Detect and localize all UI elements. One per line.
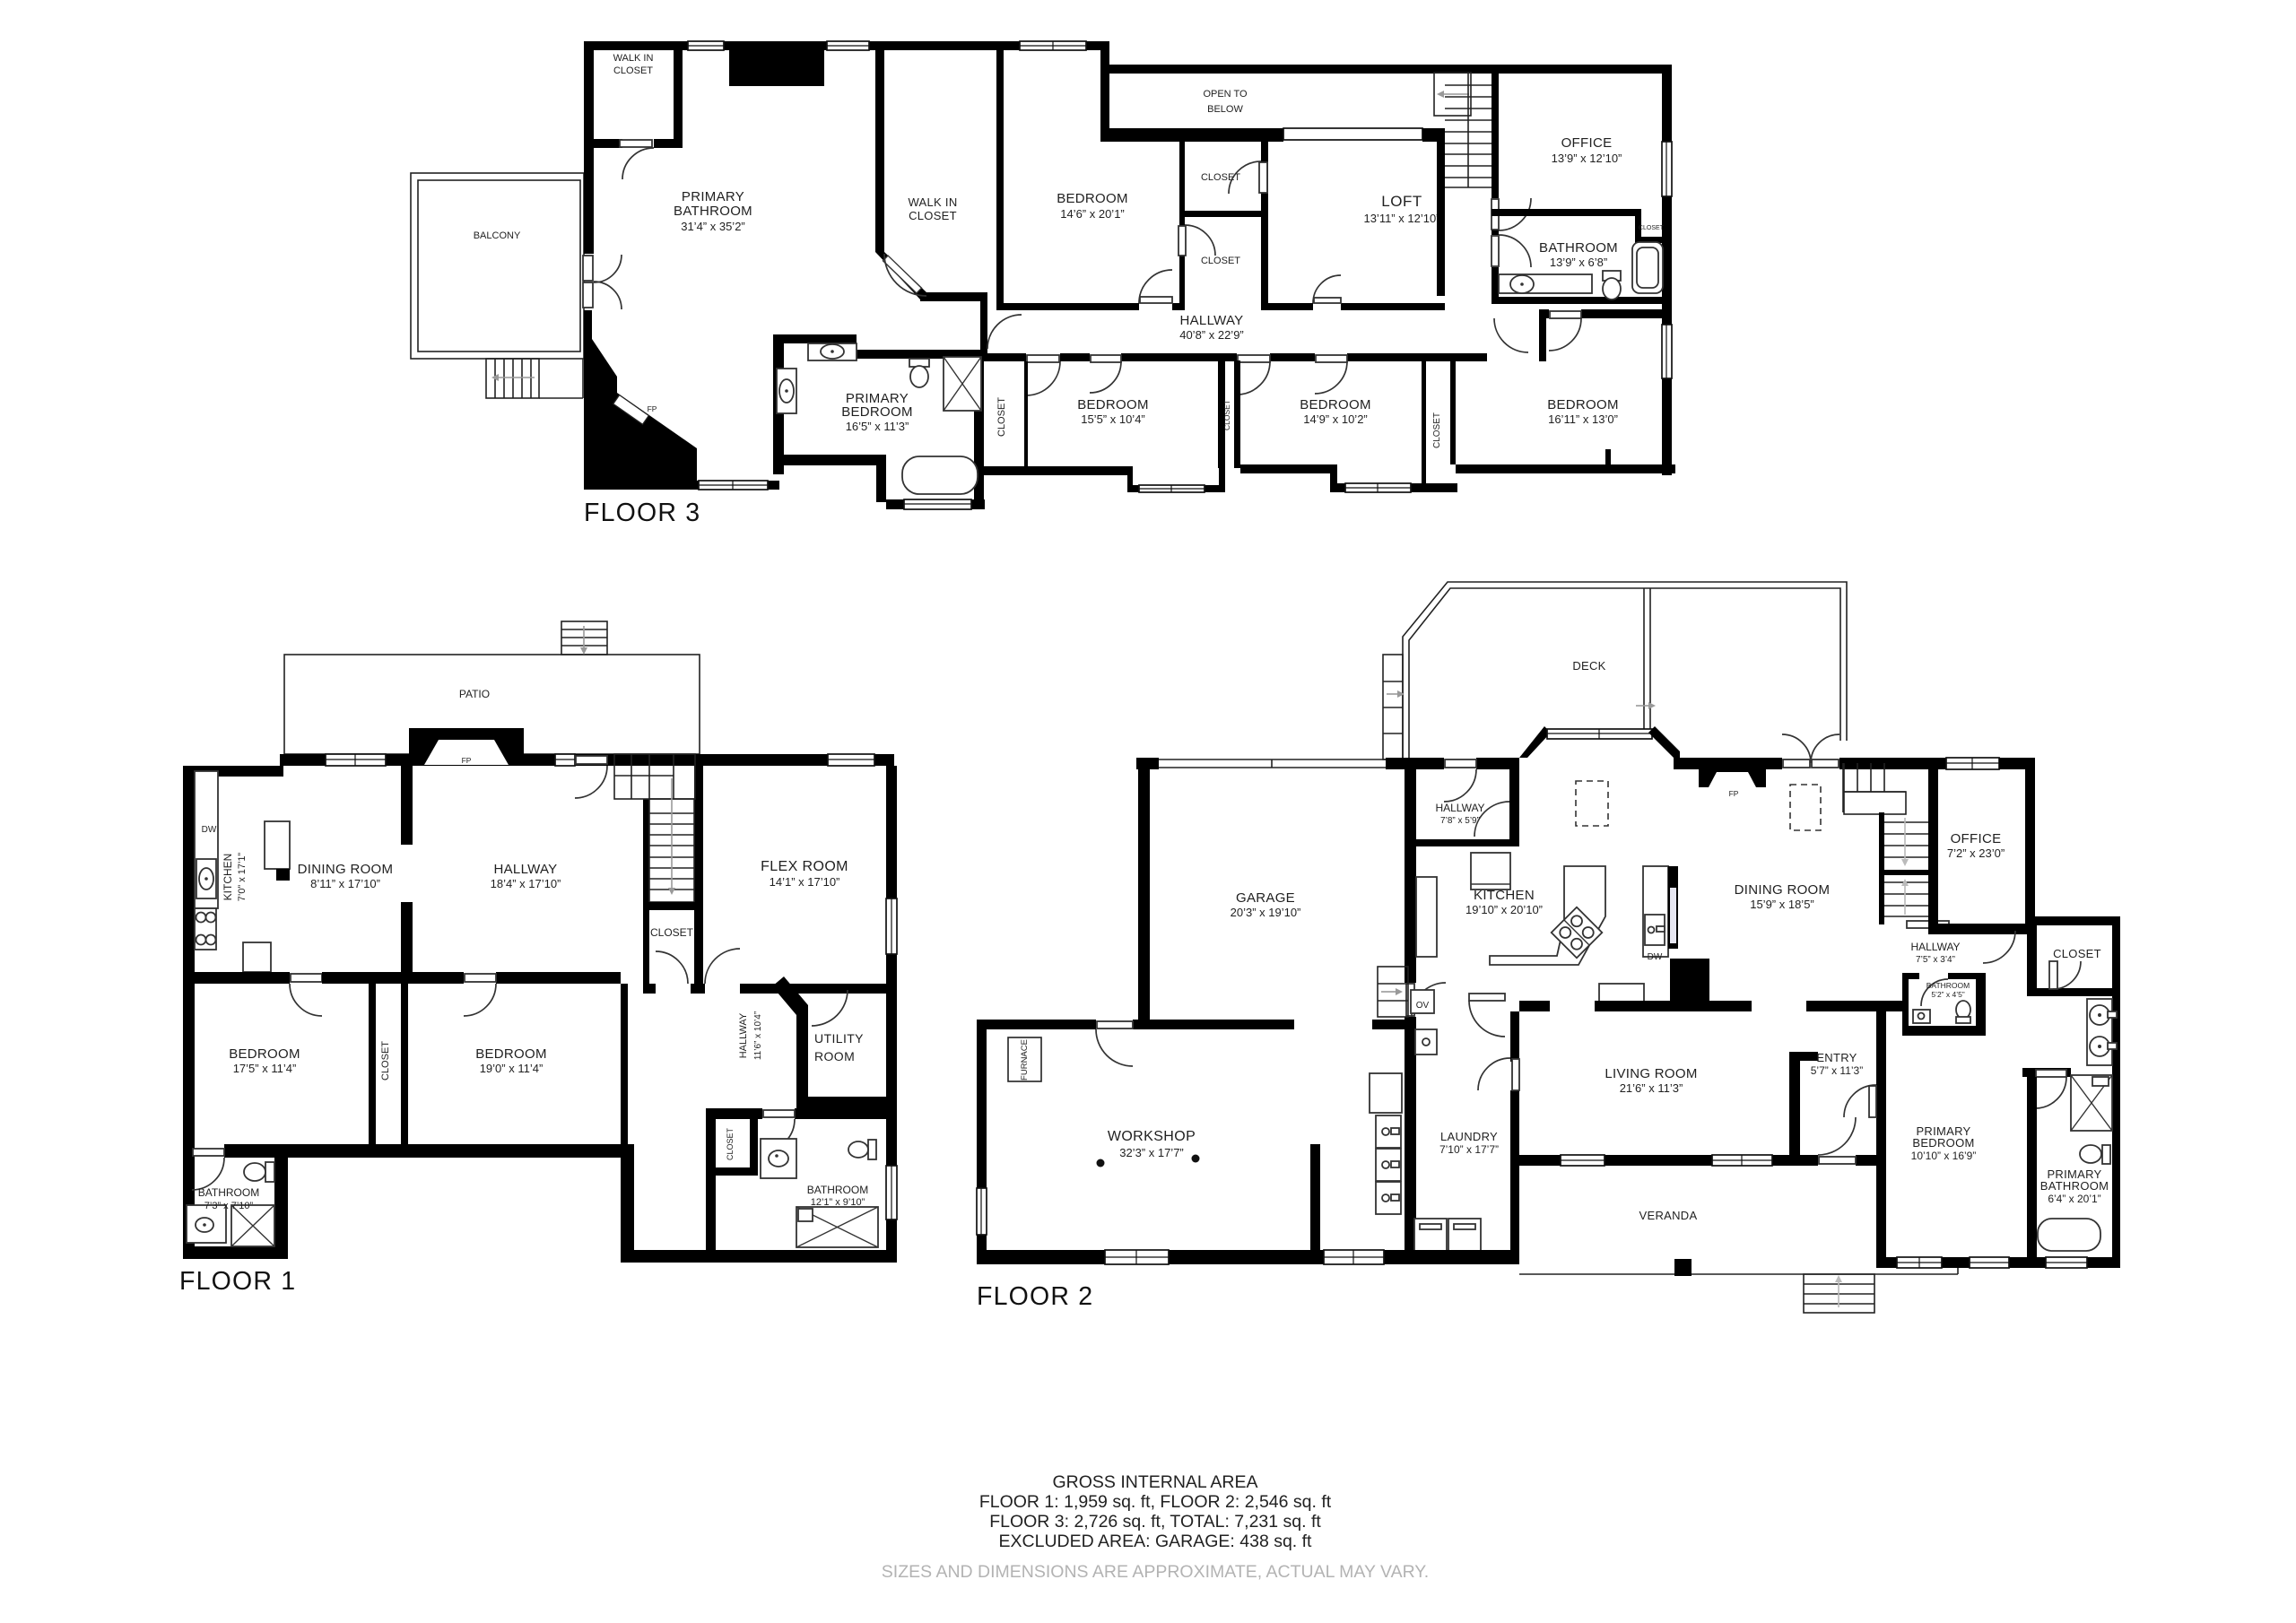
svg-text:CLOSET: CLOSET [1639,225,1665,231]
svg-text:CLOSET: CLOSET [2053,947,2101,960]
svg-text:17’5” x 11’4”: 17’5” x 11’4” [233,1062,297,1075]
svg-text:KITCHEN: KITCHEN [222,854,234,901]
svg-text:8’11” x 17’10”: 8’11” x 17’10” [310,877,380,890]
svg-text:SIZES AND DIMENSIONS ARE APPRO: SIZES AND DIMENSIONS ARE APPROXIMATE, AC… [882,1562,1429,1582]
svg-text:GROSS INTERNAL AREA: GROSS INTERNAL AREA [1052,1472,1257,1492]
svg-text:16’11” x 13’0”: 16’11” x 13’0” [1548,412,1618,426]
svg-text:7’2” x 23’0”: 7’2” x 23’0” [1947,846,2005,860]
svg-text:BEDROOM: BEDROOM [1077,397,1149,412]
svg-text:EXCLUDED AREA: GARAGE: 438 sq.: EXCLUDED AREA: GARAGE: 438 sq. ft [999,1532,1313,1551]
svg-text:HALLWAY: HALLWAY [738,1012,749,1058]
svg-text:BEDROOM: BEDROOM [841,404,913,420]
svg-text:FP: FP [1729,789,1739,798]
svg-text:DINING ROOM: DINING ROOM [1735,882,1831,898]
svg-text:FLOOR 3: 2,726 sq. ft, TOTAL:: FLOOR 3: 2,726 sq. ft, TOTAL: 7,231 sq. … [989,1512,1321,1532]
svg-text:FLOOR 1: FLOOR 1 [179,1267,296,1296]
svg-text:HALLWAY: HALLWAY [493,862,557,877]
svg-text:BEDROOM: BEDROOM [475,1046,547,1062]
svg-text:FP: FP [648,404,657,413]
svg-text:CLOSET: CLOSET [1432,412,1442,448]
svg-text:6’4” x 20’1”: 6’4” x 20’1” [2048,1193,2100,1205]
svg-text:31’4” x 35’2”: 31’4” x 35’2” [681,220,745,233]
svg-text:CLOSET: CLOSET [726,1127,735,1160]
svg-text:CLOSET: CLOSET [650,926,694,939]
svg-text:WORKSHOP: WORKSHOP [1108,1129,1196,1144]
svg-text:ROOM: ROOM [814,1049,855,1063]
svg-text:OFFICE: OFFICE [1561,135,1613,151]
svg-text:HALLWAY: HALLWAY [1435,802,1484,814]
svg-text:32’3” x 17’7”: 32’3” x 17’7” [1119,1146,1184,1159]
svg-text:ENTRY: ENTRY [1816,1051,1857,1064]
svg-text:15’5” x 10’4”: 15’5” x 10’4” [1081,412,1145,426]
svg-text:UTILITY: UTILITY [814,1031,864,1046]
svg-text:FLOOR 3: FLOOR 3 [584,499,700,527]
svg-text:WALK IN: WALK IN [613,53,654,64]
svg-text:BEDROOM: BEDROOM [1547,397,1619,412]
svg-text:13’11” x 12’10”: 13’11” x 12’10” [1363,212,1439,225]
svg-text:LOFT: LOFT [1381,193,1422,210]
svg-text:14’6” x 20’1”: 14’6” x 20’1” [1060,207,1125,221]
svg-text:DECK: DECK [1572,659,1605,673]
svg-text:BATHROOM: BATHROOM [807,1184,868,1196]
svg-text:BATHROOM: BATHROOM [1926,981,1970,990]
svg-text:BALCONY: BALCONY [474,230,521,241]
svg-text:FLOOR 1: 1,959 sq. ft, FLOOR 2: FLOOR 1: 1,959 sq. ft, FLOOR 2: 2,546 sq… [979,1492,1332,1512]
svg-text:10’10” x 16’9”: 10’10” x 16’9” [1911,1150,1977,1162]
svg-text:20’3” x 19’10”: 20’3” x 19’10” [1231,906,1301,919]
svg-text:LAUNDRY: LAUNDRY [1440,1130,1498,1143]
svg-text:CLOSET: CLOSET [996,397,1007,437]
svg-text:14’1” x 17’10”: 14’1” x 17’10” [770,875,840,889]
svg-text:BATHROOM: BATHROOM [1539,240,1618,256]
svg-text:BEDROOM: BEDROOM [1300,397,1371,412]
svg-text:CLOSET: CLOSET [1222,400,1231,430]
svg-text:7’0” x 17’1”: 7’0” x 17’1” [237,852,248,901]
svg-text:15’9” x 18’5”: 15’9” x 18’5” [1750,898,1814,911]
svg-text:21’6” x 11’3”: 21’6” x 11’3” [1620,1081,1683,1095]
svg-text:13’9” x 12’10”: 13’9” x 12’10” [1552,152,1622,165]
svg-text:DINING ROOM: DINING ROOM [298,862,394,877]
svg-text:5’7” x 11’3”: 5’7” x 11’3” [1811,1064,1863,1077]
svg-text:7’10” x 17’7”: 7’10” x 17’7” [1439,1143,1499,1156]
svg-text:FLOOR 2: FLOOR 2 [977,1282,1093,1311]
svg-text:OFFICE: OFFICE [1951,831,2002,846]
svg-text:OPEN TO: OPEN TO [1203,89,1248,100]
svg-text:BATHROOM: BATHROOM [2040,1179,2109,1193]
svg-text:FLEX ROOM: FLEX ROOM [761,859,848,874]
svg-text:18’4” x 17’10”: 18’4” x 17’10” [491,877,561,890]
svg-text:19’0” x 11’4”: 19’0” x 11’4” [480,1062,544,1075]
svg-text:HALLWAY: HALLWAY [1910,941,1960,953]
svg-text:BEDROOM: BEDROOM [1057,191,1128,206]
svg-text:HALLWAY: HALLWAY [1179,313,1243,328]
svg-text:GARAGE: GARAGE [1236,890,1295,906]
svg-text:FP: FP [462,756,472,765]
svg-text:BEDROOM: BEDROOM [229,1046,300,1062]
svg-text:KITCHEN: KITCHEN [1474,888,1535,903]
svg-text:13’9” x 6’8”: 13’9” x 6’8” [1550,256,1607,269]
svg-text:11’6” x 10’4”: 11’6” x 10’4” [753,1011,763,1060]
svg-text:CLOSET: CLOSET [909,209,957,222]
svg-text:40’8” x 22’9”: 40’8” x 22’9” [1179,328,1244,342]
svg-text:CLOSET: CLOSET [380,1041,391,1081]
svg-text:DW: DW [202,825,217,835]
svg-text:7’8” x 5’9”: 7’8” x 5’9” [1440,816,1480,826]
svg-text:CLOSET: CLOSET [613,65,653,76]
svg-text:16’5” x 11’3”: 16’5” x 11’3” [846,420,909,433]
svg-text:DW: DW [1648,952,1663,962]
svg-text:19’10” x 20’10”: 19’10” x 20’10” [1465,903,1543,916]
svg-text:PATIO: PATIO [459,688,490,700]
svg-text:BATHROOM: BATHROOM [198,1186,259,1199]
svg-text:PRIMARY: PRIMARY [682,189,744,204]
svg-text:LIVING ROOM: LIVING ROOM [1605,1066,1697,1081]
svg-text:CLOSET: CLOSET [1201,256,1240,266]
svg-text:BEDROOM: BEDROOM [1912,1136,1974,1150]
svg-text:WALK IN: WALK IN [908,195,957,209]
svg-text:BATHROOM: BATHROOM [674,204,752,219]
svg-text:7’5” x 3’4”: 7’5” x 3’4” [1916,955,1955,965]
svg-text:OV: OV [1416,1001,1430,1011]
svg-text:BELOW: BELOW [1207,104,1243,115]
svg-text:7’3” x 7’10”: 7’3” x 7’10” [204,1201,254,1211]
svg-text:5’2” x 4’5”: 5’2” x 4’5” [1931,990,1964,999]
svg-text:VERANDA: VERANDA [1639,1209,1698,1222]
svg-text:FURNACE: FURNACE [1020,1039,1030,1081]
svg-text:14’9” x 10’2”: 14’9” x 10’2” [1303,412,1368,426]
